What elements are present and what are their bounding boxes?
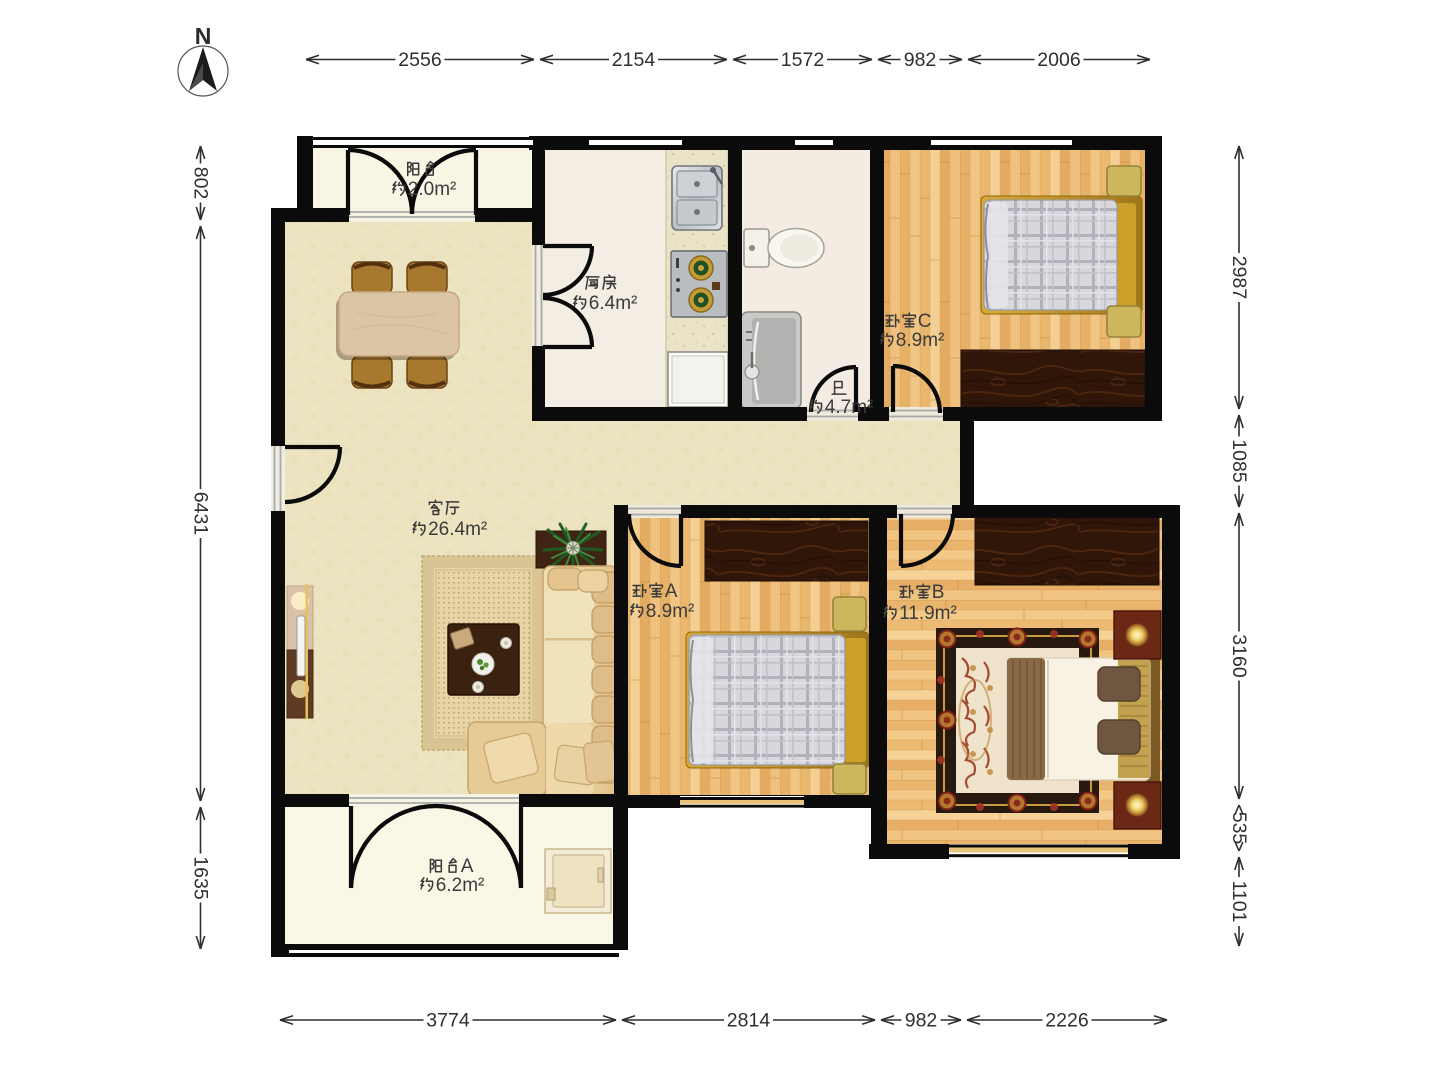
svg-text:11.9m²: 11.9m²: [899, 603, 957, 624]
svg-text:6.2m²: 6.2m²: [436, 875, 485, 896]
svg-text:982: 982: [905, 1010, 938, 1032]
svg-text:8.9m²: 8.9m²: [646, 601, 695, 622]
svg-text:4.7m²: 4.7m²: [825, 397, 874, 418]
svg-text:802: 802: [190, 167, 212, 200]
svg-text:982: 982: [904, 49, 937, 71]
svg-text:8.9m²: 8.9m²: [896, 330, 945, 351]
svg-text:26.4m²: 26.4m²: [428, 519, 487, 540]
svg-text:B: B: [932, 582, 945, 603]
svg-text:2987: 2987: [1228, 256, 1250, 299]
svg-text:3774: 3774: [426, 1010, 470, 1032]
svg-text:1101: 1101: [1228, 881, 1250, 923]
svg-text:6.4m²: 6.4m²: [589, 293, 638, 314]
svg-text:C: C: [918, 311, 932, 332]
svg-text:535: 535: [1228, 812, 1250, 845]
svg-text:A: A: [665, 581, 678, 602]
svg-text:6431: 6431: [190, 492, 212, 535]
svg-text:1635: 1635: [190, 856, 212, 900]
svg-text:3160: 3160: [1228, 634, 1250, 678]
svg-text:A: A: [461, 856, 474, 877]
svg-text:2814: 2814: [727, 1010, 771, 1032]
svg-text:1085: 1085: [1228, 439, 1250, 483]
svg-text:2154: 2154: [612, 49, 656, 71]
svg-text:2226: 2226: [1045, 1010, 1088, 1032]
svg-text:N: N: [195, 23, 212, 49]
svg-text:2556: 2556: [398, 49, 441, 71]
svg-text:2006: 2006: [1037, 49, 1080, 71]
svg-text:1572: 1572: [781, 49, 824, 71]
svg-text:2.0m²: 2.0m²: [408, 179, 457, 200]
